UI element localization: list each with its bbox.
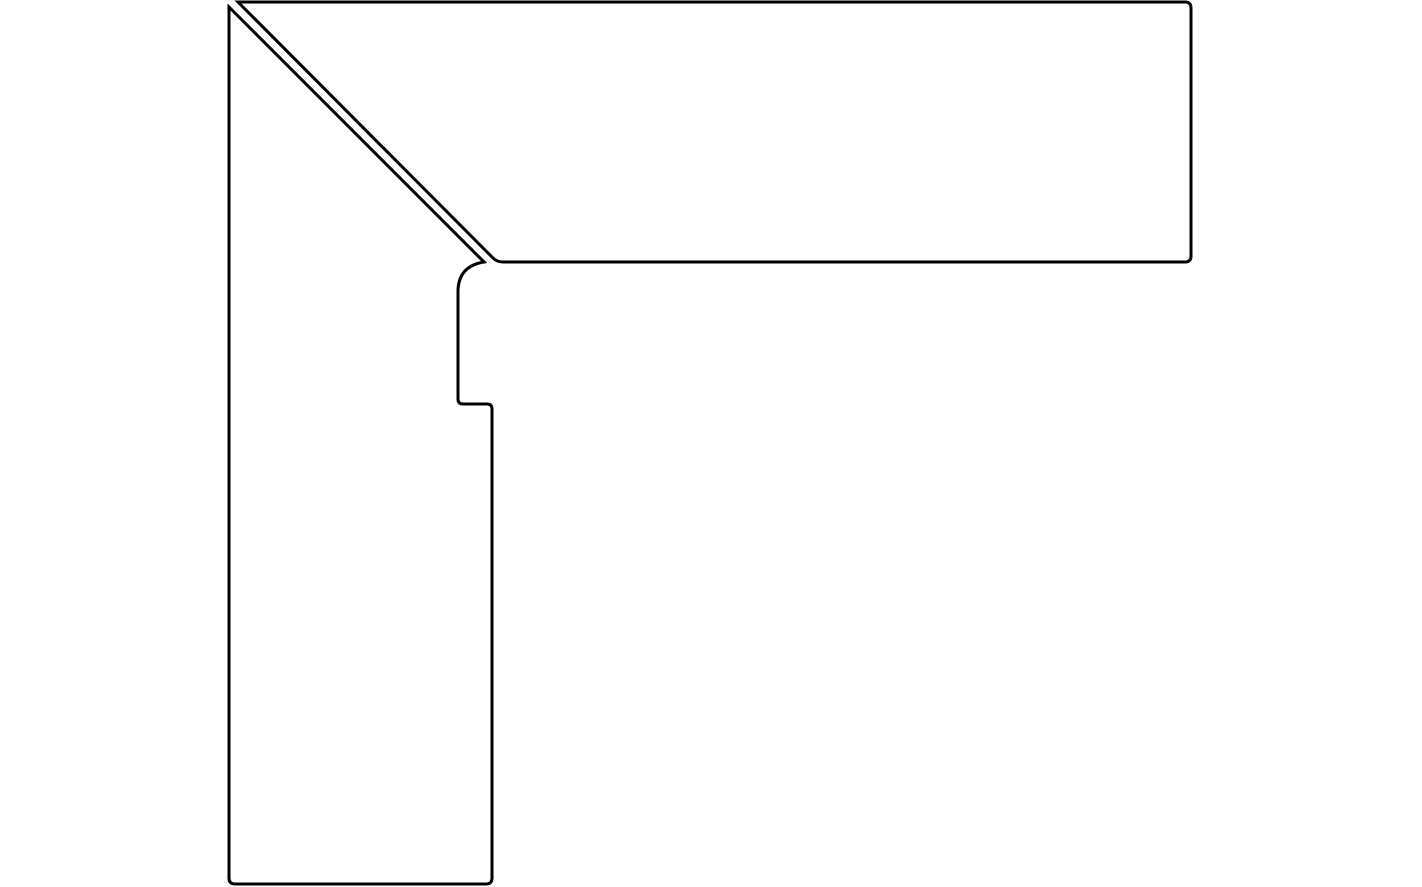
corner-profile-drawing bbox=[0, 0, 1422, 887]
profile-outline-svg bbox=[0, 0, 1422, 887]
